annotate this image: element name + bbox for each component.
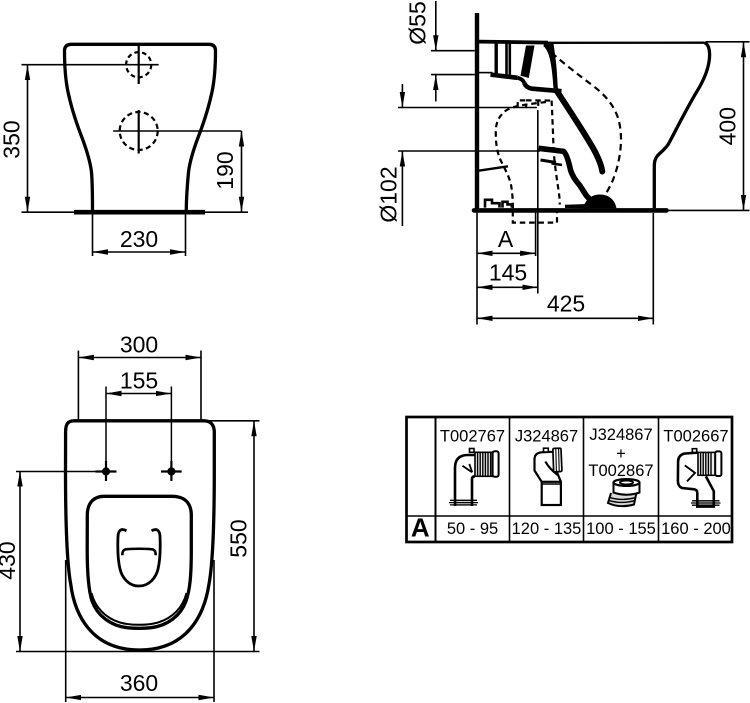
svg-text:T002667: T002667 (663, 428, 728, 446)
svg-text:A: A (498, 226, 514, 252)
svg-text:360: 360 (120, 670, 158, 696)
svg-text:550: 550 (226, 519, 252, 557)
svg-text:100 - 155: 100 - 155 (586, 520, 656, 538)
svg-text:155: 155 (120, 368, 158, 394)
svg-text:350: 350 (0, 120, 25, 158)
svg-text:400: 400 (715, 107, 741, 145)
svg-text:+: + (616, 445, 626, 463)
svg-text:160 - 200: 160 - 200 (661, 520, 731, 538)
svg-text:425: 425 (547, 291, 585, 317)
svg-text:J324867: J324867 (589, 426, 652, 444)
svg-text:Ø55: Ø55 (405, 1, 431, 44)
svg-text:120 - 135: 120 - 135 (512, 520, 582, 538)
svg-text:145: 145 (489, 260, 527, 286)
svg-text:190: 190 (212, 151, 238, 189)
svg-text:T002767: T002767 (440, 428, 505, 446)
svg-text:A: A (411, 513, 430, 543)
svg-text:T002867: T002867 (588, 462, 653, 480)
svg-text:430: 430 (0, 541, 20, 579)
svg-text:300: 300 (120, 332, 158, 358)
svg-text:230: 230 (120, 226, 158, 252)
svg-text:Ø102: Ø102 (376, 166, 402, 222)
svg-text:50 - 95: 50 - 95 (447, 520, 498, 538)
svg-text:J324867: J324867 (515, 428, 578, 446)
